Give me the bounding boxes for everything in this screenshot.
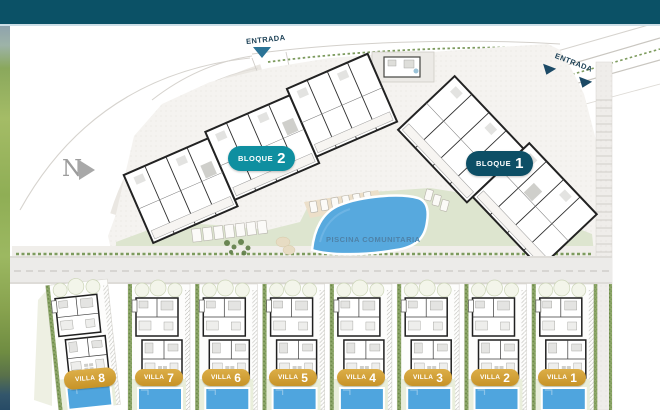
bloque-1-number: 1 [515, 155, 523, 172]
site-plan: ENTRADA ENTRADA N BLOQUE 2 BLOQUE 1 PISC… [0, 0, 660, 410]
bloque-2-badge: BLOQUE 2 [228, 146, 295, 171]
villa-7-badge: VILLA7 [135, 369, 183, 386]
villa-plot-4 [330, 280, 392, 410]
villa-plot-8 [45, 275, 120, 410]
villa-5-badge: VILLA5 [269, 369, 317, 386]
north-arrow-icon [79, 160, 95, 180]
villa-4-badge: VILLA4 [337, 369, 385, 386]
north-arrow: N [62, 156, 95, 182]
amenity-building [372, 52, 434, 82]
bloque-2-label: BLOQUE [238, 154, 273, 163]
community-pool-label: PISCINA COMUNITARIA [326, 235, 421, 244]
villas-row [34, 275, 597, 410]
top-banner [0, 0, 660, 24]
bloque-1-badge: BLOQUE 1 [466, 151, 533, 176]
bloque-1-label: BLOQUE [476, 159, 511, 168]
villa-2-badge: VILLA2 [471, 369, 519, 386]
villa-plot-3 [397, 280, 459, 410]
entrance-arrow-top-icon [253, 47, 271, 58]
villa-plot-2 [465, 280, 527, 410]
villa-plot-7 [128, 280, 190, 410]
banner-edge-line [0, 24, 660, 26]
bloque-2-number: 2 [277, 150, 285, 167]
villa-plot-6 [195, 280, 257, 410]
background-photo-strip [0, 26, 10, 410]
villa-1-badge: VILLA1 [538, 369, 586, 386]
villa-3-badge: VILLA3 [404, 369, 452, 386]
villa-plot-1 [532, 280, 594, 410]
villa-plot-5 [263, 280, 325, 410]
villa-6-badge: VILLA6 [202, 369, 250, 386]
parking-strip [596, 62, 612, 410]
